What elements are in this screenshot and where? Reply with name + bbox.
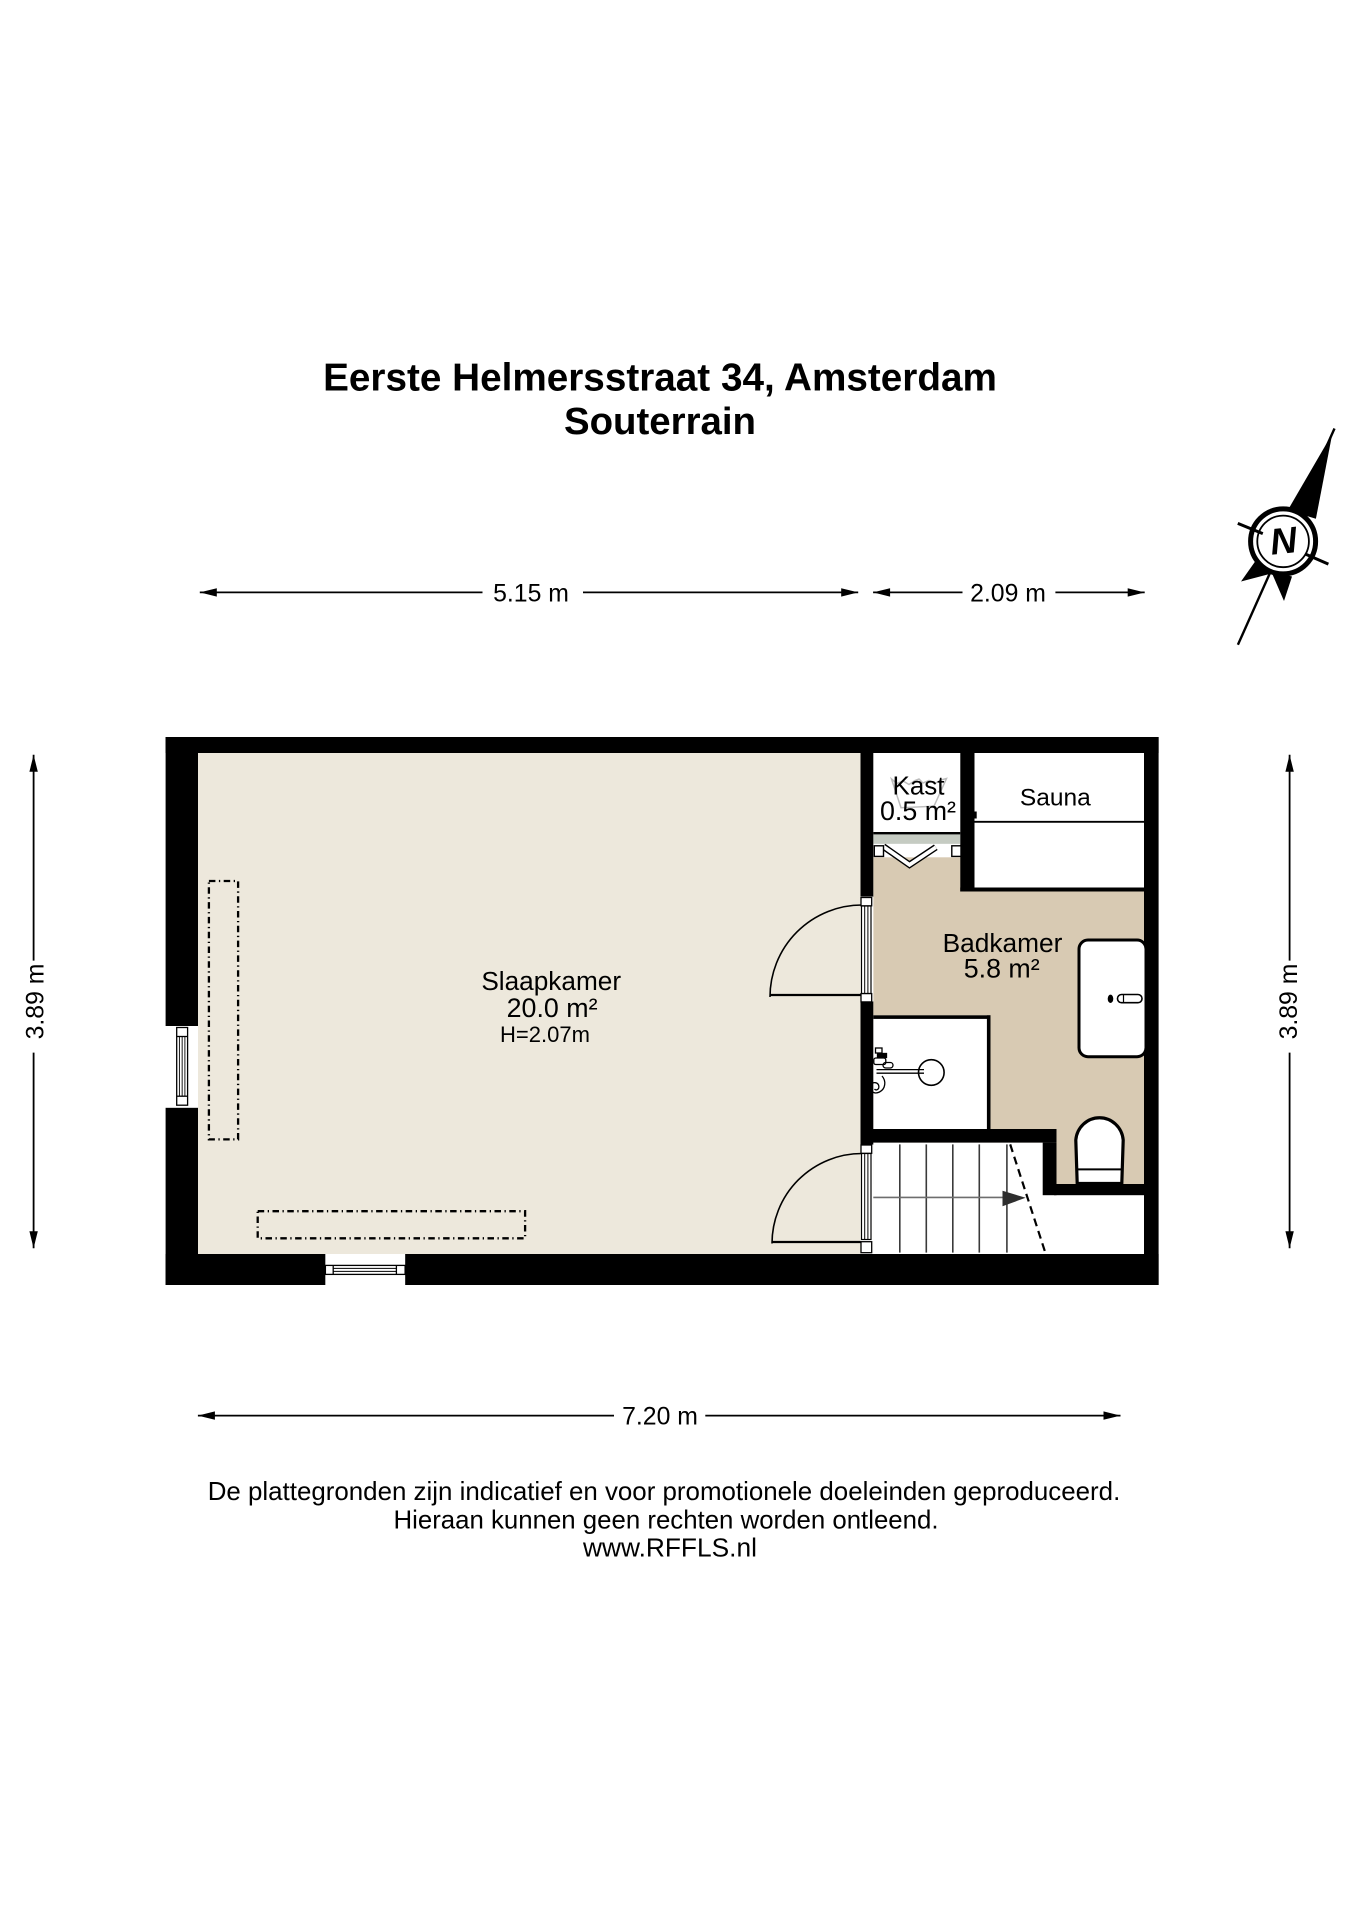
- svg-text:7.20 m: 7.20 m: [622, 1404, 698, 1431]
- svg-text:2.09 m: 2.09 m: [970, 581, 1046, 608]
- svg-text:H=2.07m: H=2.07m: [500, 1022, 590, 1047]
- svg-text:Slaapkamer: Slaapkamer: [481, 966, 621, 996]
- svg-text:3.89 m: 3.89 m: [1276, 964, 1303, 1040]
- svg-text:5.8 m²: 5.8 m²: [964, 953, 1040, 983]
- svg-text:20.0 m²: 20.0 m²: [507, 993, 598, 1023]
- svg-text:Eerste Helmersstraat 34, Amste: Eerste Helmersstraat 34, Amsterdam: [323, 357, 997, 400]
- svg-text:Sauna: Sauna: [1020, 785, 1091, 812]
- svg-text:www.RFFLS.nl: www.RFFLS.nl: [582, 1532, 757, 1562]
- svg-text:Souterrain: Souterrain: [564, 400, 756, 443]
- svg-text:3.89 m: 3.89 m: [23, 964, 50, 1040]
- svg-text:De plattegronden zijn indicati: De plattegronden zijn indicatief en voor…: [208, 1478, 1121, 1506]
- svg-text:0.5 m²: 0.5 m²: [880, 796, 956, 826]
- svg-text:5.15 m: 5.15 m: [493, 581, 569, 608]
- svg-text:Hieraan kunnen geen rechten wo: Hieraan kunnen geen rechten worden ontle…: [394, 1507, 939, 1535]
